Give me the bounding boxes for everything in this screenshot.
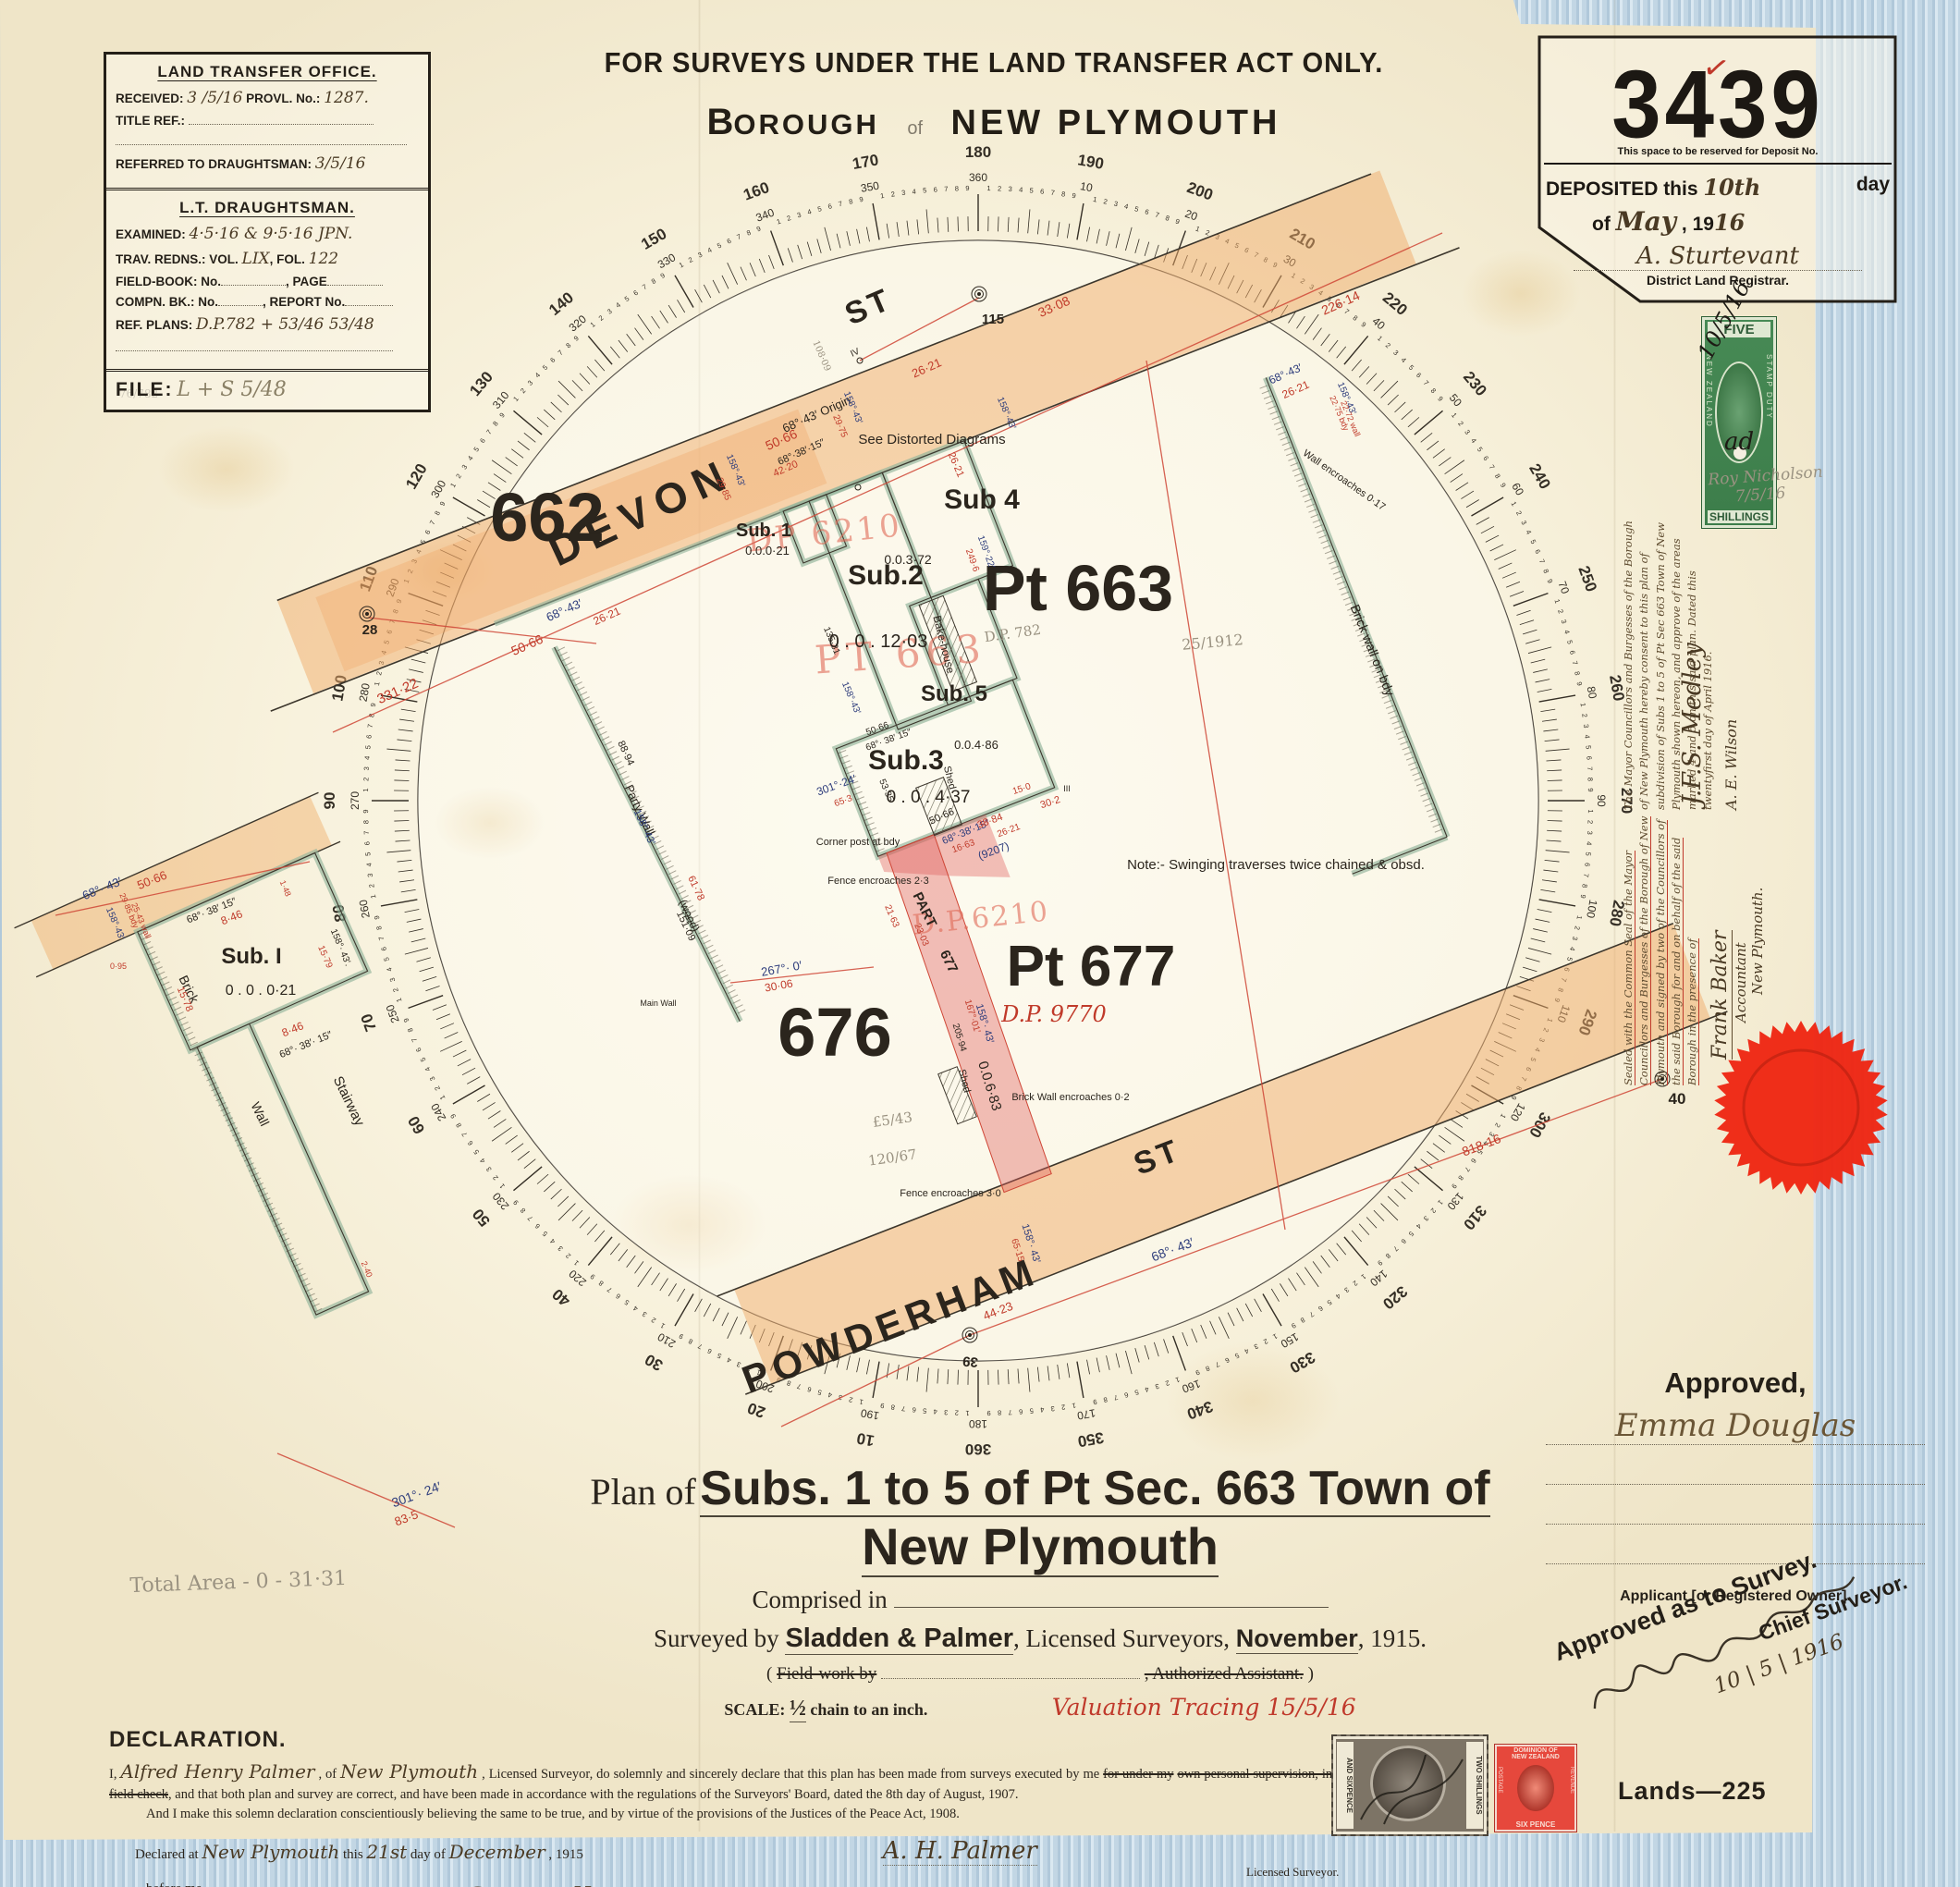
svg-text:2: 2 <box>1429 1207 1438 1215</box>
svg-text:4: 4 <box>1585 841 1593 846</box>
svg-text:4: 4 <box>933 1407 937 1415</box>
plan-label: See Distorted Diagrams <box>858 432 1005 447</box>
svg-text:210: 210 <box>655 1329 679 1350</box>
svg-text:3: 3 <box>428 1075 437 1083</box>
svg-text:2: 2 <box>597 313 606 323</box>
lto-received-section: LAND TRANSFER OFFICE. RECEIVED: 3 /5/16 … <box>106 55 428 188</box>
svg-text:4: 4 <box>1469 436 1478 445</box>
svg-text:1: 1 <box>1093 195 1098 204</box>
deposit-month: May <box>1616 206 1676 237</box>
borough-b: B <box>707 102 734 142</box>
report-label: , REPORT No. <box>263 295 345 309</box>
received-value: 3 /5/16 <box>187 89 242 107</box>
applicant-signature: Emma Douglas <box>1546 1407 1925 1445</box>
svg-text:5: 5 <box>419 1056 428 1063</box>
svg-text:6: 6 <box>1585 755 1593 760</box>
svg-text:7: 7 <box>484 428 494 436</box>
scale-label: SCALE: <box>724 1700 785 1719</box>
svg-text:3: 3 <box>1154 1382 1160 1391</box>
svg-text:4: 4 <box>385 966 394 972</box>
plan-label: 676 <box>778 994 891 1071</box>
svg-text:5: 5 <box>816 1388 822 1397</box>
declaration-title: DECLARATION. <box>109 1727 1403 1753</box>
svg-text:8: 8 <box>361 820 370 824</box>
svg-text:120: 120 <box>402 460 431 492</box>
svg-text:4: 4 <box>614 300 622 310</box>
referred-label: REFERRED TO DRAUGHTSMAN: <box>116 157 312 171</box>
decl-struck-1: for under my <box>1103 1767 1173 1782</box>
svg-text:1: 1 <box>1579 703 1588 708</box>
svg-text:4: 4 <box>1123 202 1129 211</box>
svg-text:2: 2 <box>1456 420 1465 428</box>
svg-text:9: 9 <box>438 500 447 508</box>
plan-label: 662 <box>490 479 604 556</box>
plan-label: 0.0.4·86 <box>954 738 998 752</box>
svg-text:4: 4 <box>1334 1292 1342 1301</box>
plan-label: 0·95 <box>110 962 127 971</box>
stamp-nz: NEW ZEALAND <box>1705 354 1713 484</box>
surveyed-by-label: Surveyed by <box>654 1624 779 1652</box>
svg-text:2: 2 <box>433 1084 442 1092</box>
svg-text:3: 3 <box>366 873 374 877</box>
svg-text:7: 7 <box>901 1404 906 1413</box>
header-title: FOR SURVEYS UNDER THE LAND TRANSFER ACT … <box>546 46 1441 80</box>
svg-text:2: 2 <box>1586 820 1595 824</box>
svg-text:7: 7 <box>1050 189 1055 197</box>
svg-text:5: 5 <box>472 1148 481 1157</box>
svg-text:200: 200 <box>1184 178 1215 204</box>
decl-p1b: , of <box>318 1767 337 1782</box>
svg-text:3: 3 <box>606 307 614 316</box>
plan-label: 0.0.3·72 <box>884 552 932 567</box>
svg-text:220: 220 <box>1379 288 1411 319</box>
borough-rest: OROUGH <box>733 108 879 141</box>
svg-text:6: 6 <box>806 1385 812 1394</box>
svg-text:6: 6 <box>1533 548 1542 555</box>
svg-text:4: 4 <box>1583 734 1591 739</box>
trav-label: TRAV. REDNS.: VOL. <box>116 252 239 266</box>
svg-text:8: 8 <box>374 925 384 931</box>
svg-text:1: 1 <box>1586 809 1595 813</box>
plan-label: Main Wall <box>640 999 676 1008</box>
svg-text:9: 9 <box>589 1272 597 1281</box>
plan-label: 0 . 0 . 4·37 <box>887 788 971 807</box>
svg-text:2: 2 <box>519 386 527 395</box>
svg-text:7: 7 <box>696 1342 704 1351</box>
plan-label: Sub. 5 <box>921 681 987 706</box>
comprised-label: Comprised in <box>753 1586 888 1613</box>
svg-text:20: 20 <box>745 1399 767 1421</box>
scale-unit: chain to an inch. <box>810 1700 927 1719</box>
svg-text:160: 160 <box>1180 1377 1202 1395</box>
deposit-day: 10th <box>1703 174 1760 201</box>
lto-title: LAND TRANSFER OFFICE. <box>116 63 419 81</box>
svg-text:9: 9 <box>572 334 581 343</box>
svg-text:8: 8 <box>1586 778 1595 781</box>
svg-text:9: 9 <box>986 1409 990 1417</box>
svg-text:4: 4 <box>1040 1405 1045 1414</box>
svg-text:1: 1 <box>572 1258 581 1268</box>
svg-text:9: 9 <box>1290 1321 1297 1330</box>
svg-text:4: 4 <box>1400 356 1408 364</box>
svg-text:9: 9 <box>497 411 507 420</box>
svg-text:5: 5 <box>623 294 631 303</box>
plan-label: 1·48 <box>278 879 293 898</box>
svg-text:6: 6 <box>478 436 487 445</box>
svg-text:3: 3 <box>1571 936 1580 941</box>
plan-label: Fence encroaches 2·3 <box>827 876 928 887</box>
svg-text:100: 100 <box>1584 899 1599 919</box>
svg-text:4: 4 <box>1243 1346 1251 1355</box>
svg-text:5: 5 <box>1133 204 1139 214</box>
plan-label: Sub.3 <box>868 745 944 776</box>
plan-label: Corner post at bdy <box>816 837 900 848</box>
decl-p1a: I, <box>109 1767 116 1782</box>
svg-text:6: 6 <box>1481 454 1490 461</box>
svg-text:6: 6 <box>466 1139 475 1146</box>
svg-text:2: 2 <box>1556 608 1565 615</box>
report-blank <box>345 305 393 306</box>
svg-text:9: 9 <box>361 809 370 813</box>
compn-label: COMPN. BK.: No. <box>116 295 218 309</box>
svg-text:5: 5 <box>1584 852 1592 856</box>
svg-text:4: 4 <box>423 1066 433 1073</box>
svg-text:1: 1 <box>373 681 382 687</box>
svg-text:4: 4 <box>1568 946 1577 951</box>
consent-paragraph-2-text: Sealed with the Common Seal of the Mayor… <box>1622 816 1699 1085</box>
svg-text:7: 7 <box>1571 660 1580 666</box>
svg-text:8: 8 <box>519 1207 527 1215</box>
svg-text:6: 6 <box>548 356 557 364</box>
svg-text:7: 7 <box>838 200 843 209</box>
blank-line <box>116 144 407 145</box>
plan-label: 0.0.0·21 <box>745 544 790 558</box>
plan-title-line2: New Plymouth <box>862 1517 1219 1577</box>
deposit-day-word: day <box>1856 174 1890 196</box>
svg-text:4: 4 <box>362 755 371 760</box>
red-stamp-left: POSTAGE <box>1497 1767 1502 1811</box>
blank-line-2 <box>116 350 393 351</box>
red-stamp-portrait <box>1517 1765 1554 1811</box>
svg-text:3: 3 <box>1422 1214 1430 1222</box>
svg-text:9: 9 <box>880 1402 886 1411</box>
svg-text:6: 6 <box>706 1346 714 1355</box>
svg-text:6: 6 <box>423 529 433 536</box>
svg-text:2: 2 <box>848 1395 853 1404</box>
svg-text:2: 2 <box>1384 341 1392 349</box>
stamp-cancel-initial: ad <box>1724 428 1754 456</box>
svg-text:280: 280 <box>357 682 373 703</box>
svg-text:7: 7 <box>1582 873 1590 877</box>
svg-text:1: 1 <box>511 395 521 403</box>
plan-label: 0 . 0 . 12·03 <box>829 631 928 652</box>
svg-text:6: 6 <box>1568 650 1577 656</box>
valuation-tracing-note: Valuation Tracing 15/5/16 <box>1052 1694 1356 1721</box>
plan-label: Sub. 1 <box>736 521 791 541</box>
declared-this: this <box>343 1847 363 1862</box>
deposit-box: ✓ 3439 This space to be reserved for Dep… <box>1537 35 1899 305</box>
svg-text:3: 3 <box>526 379 534 387</box>
svg-text:7: 7 <box>1422 379 1430 387</box>
svg-text:2: 2 <box>1573 925 1582 931</box>
svg-text:6: 6 <box>614 1292 622 1301</box>
svg-text:1: 1 <box>438 1094 447 1101</box>
svg-text:9: 9 <box>1194 1368 1201 1378</box>
svg-text:4: 4 <box>1019 185 1023 193</box>
svg-text:4: 4 <box>827 1391 833 1400</box>
svg-text:2: 2 <box>1164 1378 1170 1388</box>
svg-text:8: 8 <box>1580 884 1588 888</box>
svg-text:230: 230 <box>490 1190 512 1213</box>
svg-text:3: 3 <box>1253 1342 1260 1351</box>
svg-text:7: 7 <box>1308 1310 1316 1319</box>
svg-text:4: 4 <box>1415 1222 1423 1231</box>
svg-text:6: 6 <box>1224 1355 1231 1365</box>
svg-text:6: 6 <box>1317 1304 1324 1313</box>
declared-day: 21st <box>366 1841 407 1863</box>
svg-text:2: 2 <box>1514 509 1524 517</box>
svg-text:3: 3 <box>1113 200 1119 209</box>
surveyor-signature: A. H. Palmer <box>883 1837 1037 1866</box>
draughtsman-title: L.T. DRAUGHTSMAN. <box>116 199 419 217</box>
fieldwork-close: ) <box>1308 1664 1314 1684</box>
plan-label: 28 <box>362 622 378 638</box>
svg-text:8: 8 <box>890 1403 895 1411</box>
svg-text:1: 1 <box>1499 1112 1508 1120</box>
file-value: L + S 5/48 <box>177 378 287 401</box>
svg-text:3: 3 <box>484 1165 494 1173</box>
svg-text:5: 5 <box>541 1230 549 1238</box>
svg-text:3: 3 <box>1463 428 1472 436</box>
svg-text:4: 4 <box>631 1304 639 1313</box>
svg-text:150: 150 <box>638 225 669 253</box>
consent-signature-baker: Frank Baker Accountant New Plymouth. <box>1709 773 1766 1060</box>
consent-signature-medley: J.F.S. Medley <box>1678 643 1707 805</box>
svg-text:6: 6 <box>1415 371 1423 379</box>
svg-text:6: 6 <box>1123 1391 1129 1400</box>
svg-text:9: 9 <box>1376 1258 1384 1268</box>
svg-text:3: 3 <box>901 189 906 197</box>
svg-text:6: 6 <box>1040 187 1045 195</box>
received-label: RECEIVED: <box>116 92 184 105</box>
svg-text:4: 4 <box>548 1237 557 1245</box>
plan-label: 115 <box>982 312 1004 327</box>
svg-text:120: 120 <box>1507 1101 1527 1124</box>
svg-text:1: 1 <box>1072 1402 1077 1411</box>
svg-text:7: 7 <box>366 724 374 729</box>
declared-place: New Plymouth <box>202 1841 339 1863</box>
declared-year: , 1915 <box>548 1847 583 1862</box>
svg-text:6: 6 <box>414 1047 423 1053</box>
svg-text:6: 6 <box>912 1405 916 1414</box>
svg-text:2: 2 <box>1061 1403 1066 1411</box>
trav-value: LIX <box>242 250 270 268</box>
svg-text:8: 8 <box>406 1027 415 1034</box>
title-ref-label: TITLE REF.: <box>116 114 185 128</box>
svg-text:300: 300 <box>428 478 448 501</box>
plan-label: III <box>1063 784 1071 793</box>
svg-text:3: 3 <box>641 1310 648 1319</box>
svg-text:9: 9 <box>1450 1182 1459 1190</box>
svg-text:90: 90 <box>1595 794 1608 807</box>
svg-text:7: 7 <box>1113 1393 1119 1403</box>
svg-text:3: 3 <box>459 463 469 471</box>
svg-text:2: 2 <box>374 670 384 676</box>
svg-text:7: 7 <box>459 1131 469 1138</box>
svg-text:3: 3 <box>1050 1404 1055 1413</box>
deposit-number: 3439 <box>1537 57 1899 153</box>
registrar-label: District Land Registrar. <box>1537 273 1899 288</box>
fieldbook-label: FIELD-BOOK: No. <box>116 275 221 288</box>
svg-text:360: 360 <box>965 1440 991 1458</box>
svg-text:1: 1 <box>1436 1198 1445 1207</box>
svg-text:2: 2 <box>454 472 463 480</box>
svg-text:6: 6 <box>1019 1407 1023 1415</box>
svg-text:8: 8 <box>1164 214 1170 223</box>
svg-text:9: 9 <box>1359 320 1367 329</box>
svg-text:1: 1 <box>1552 598 1562 605</box>
plan-of-label: Plan of <box>590 1471 695 1513</box>
svg-text:9: 9 <box>448 1112 458 1120</box>
svg-text:190: 190 <box>1076 151 1105 173</box>
svg-text:8: 8 <box>1456 1173 1465 1182</box>
declaration-block: DECLARATION. I, Alfred Henry Palmer , of… <box>109 1727 1403 1887</box>
svg-text:300: 300 <box>1525 1109 1554 1141</box>
svg-text:7: 7 <box>1391 1244 1400 1253</box>
svg-text:5: 5 <box>716 241 723 251</box>
svg-text:130: 130 <box>466 368 496 399</box>
svg-text:5: 5 <box>1407 363 1415 372</box>
svg-text:5: 5 <box>472 446 481 454</box>
svg-text:8: 8 <box>1299 1316 1306 1325</box>
svg-text:8: 8 <box>1429 386 1438 395</box>
licensed-surveyor-label: Licensed Surveyor. <box>1246 1865 1403 1880</box>
svg-text:9: 9 <box>369 703 378 708</box>
svg-text:1: 1 <box>497 1182 507 1190</box>
lto-file-section: FILE: L + S 5/48 <box>106 369 428 410</box>
declaration-paragraph-2: And I make this solemn declaration consc… <box>109 1805 1403 1824</box>
svg-text:5: 5 <box>1584 745 1592 750</box>
svg-text:5: 5 <box>1476 446 1485 454</box>
svg-text:7: 7 <box>1488 463 1497 471</box>
svg-text:3: 3 <box>557 1244 565 1253</box>
svg-text:9: 9 <box>1575 681 1585 687</box>
svg-text:3: 3 <box>1586 830 1594 835</box>
baker-place: New Plymouth. <box>1749 773 1766 995</box>
svg-text:330: 330 <box>655 251 679 271</box>
svg-text:7: 7 <box>410 1036 419 1043</box>
svg-text:1: 1 <box>659 1321 667 1330</box>
declarant-place: New Plymouth <box>340 1760 478 1783</box>
svg-text:4: 4 <box>1524 529 1533 536</box>
svg-text:80: 80 <box>1585 685 1599 700</box>
svg-text:6: 6 <box>1400 1237 1408 1245</box>
svg-text:1: 1 <box>1509 500 1518 508</box>
declarant-name: Alfred Henry Palmer <box>120 1760 314 1783</box>
svg-text:7: 7 <box>557 349 565 357</box>
svg-text:9: 9 <box>511 1198 521 1207</box>
svg-text:8: 8 <box>454 1121 463 1129</box>
svg-text:260: 260 <box>357 899 373 919</box>
svg-text:1: 1 <box>1174 1375 1181 1384</box>
svg-text:5: 5 <box>541 363 549 372</box>
svg-text:3: 3 <box>696 251 704 260</box>
svg-text:9: 9 <box>678 1331 685 1341</box>
fieldbook-blank <box>221 285 286 286</box>
svg-text:5: 5 <box>382 956 391 962</box>
svg-text:2: 2 <box>391 986 400 993</box>
two-and-six-stamp: AND SIXPENCE TWO SHILLINGS <box>1331 1734 1488 1836</box>
svg-text:50: 50 <box>469 1206 494 1231</box>
svg-text:2: 2 <box>1580 713 1588 717</box>
examined-label: EXAMINED: <box>116 227 186 241</box>
svg-text:4: 4 <box>1144 1385 1149 1394</box>
before-me-label: before me,— <box>146 1881 1403 1887</box>
survey-plan-sheet: 1803601234567891901012345678920020123456… <box>0 0 1960 1887</box>
svg-text:1: 1 <box>965 1409 969 1417</box>
svg-text:90: 90 <box>321 792 338 810</box>
svg-text:2: 2 <box>687 255 694 264</box>
svg-text:320: 320 <box>567 312 590 335</box>
svg-text:7: 7 <box>1586 766 1594 771</box>
examined-value: 4·5·16 & 9·5·16 JPN. <box>190 225 353 243</box>
deposit-of: of <box>1592 214 1611 235</box>
deposit-rule <box>1544 163 1892 165</box>
svg-text:5: 5 <box>1326 1298 1334 1307</box>
svg-text:9: 9 <box>965 184 969 192</box>
svg-text:9: 9 <box>755 225 762 234</box>
svg-text:170: 170 <box>851 151 880 173</box>
svg-text:8: 8 <box>745 228 752 238</box>
stamp-duty: STAMP DUTY <box>1765 354 1773 484</box>
svg-text:5: 5 <box>363 852 372 856</box>
svg-text:2: 2 <box>491 1173 500 1182</box>
svg-text:180: 180 <box>965 143 991 161</box>
plan-label: Wall <box>248 1099 272 1128</box>
svg-text:7: 7 <box>377 936 386 941</box>
svg-text:180: 180 <box>969 1417 987 1430</box>
svg-text:3: 3 <box>362 766 371 771</box>
svg-text:1: 1 <box>776 217 782 227</box>
svg-text:4: 4 <box>1562 629 1572 634</box>
declared-at-label: Declared at <box>135 1847 199 1862</box>
svg-text:4: 4 <box>466 454 475 461</box>
svg-text:2: 2 <box>890 190 895 198</box>
svg-text:8: 8 <box>1205 1364 1211 1373</box>
svg-text:190: 190 <box>860 1406 880 1422</box>
svg-text:9: 9 <box>373 915 382 921</box>
svg-text:2: 2 <box>955 1409 959 1417</box>
svg-text:5: 5 <box>716 1351 723 1360</box>
svg-text:6: 6 <box>364 734 373 739</box>
plan-label: 0 . 0 . 0·21 <box>226 983 297 999</box>
svg-text:2: 2 <box>564 1252 572 1260</box>
comprised-blank <box>894 1607 1329 1608</box>
fieldwork-label: Field-work by <box>777 1664 876 1684</box>
svg-text:330: 330 <box>1287 1348 1318 1377</box>
survey-year: , 1915. <box>1358 1624 1427 1652</box>
svg-text:7: 7 <box>1537 558 1547 564</box>
red-stamp-top: DOMINION OF <box>1495 1747 1576 1754</box>
svg-text:9: 9 <box>1174 217 1181 227</box>
fieldwork-open: ( <box>766 1664 772 1684</box>
svg-text:7: 7 <box>526 1214 534 1222</box>
svg-text:6: 6 <box>631 288 639 298</box>
svg-text:8: 8 <box>491 420 500 428</box>
svg-text:60: 60 <box>405 1113 429 1137</box>
svg-text:140: 140 <box>1367 1268 1390 1290</box>
svg-text:7: 7 <box>1214 1360 1220 1369</box>
